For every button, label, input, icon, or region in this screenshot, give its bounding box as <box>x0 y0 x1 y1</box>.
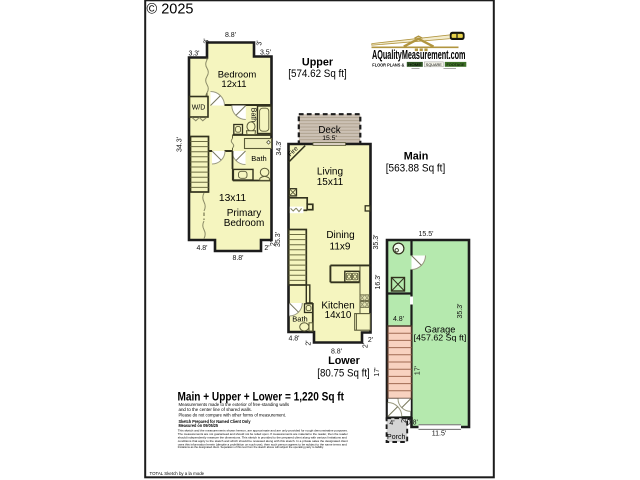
svg-text:FOOTAGE: FOOTAGE <box>447 63 466 67</box>
svg-text:© 2025: © 2025 <box>147 2 194 18</box>
svg-text:0.8': 0.8' <box>407 420 418 427</box>
svg-text:HOME: HOME <box>408 63 422 67</box>
svg-text:Bath: Bath <box>251 154 266 163</box>
svg-text:4.8': 4.8' <box>196 245 207 252</box>
svg-text:Living: Living <box>317 167 343 178</box>
svg-text:Bath: Bath <box>250 108 257 123</box>
svg-text:TOTAL Sketch by a la mode: TOTAL Sketch by a la mode <box>150 471 205 476</box>
svg-text:8.8': 8.8' <box>225 32 236 39</box>
svg-text:2': 2' <box>305 340 312 345</box>
svg-text:4': 4' <box>389 420 394 427</box>
svg-text:34.3': 34.3' <box>276 141 283 156</box>
svg-text:2': 2' <box>363 343 370 348</box>
svg-text:W/D: W/D <box>192 105 206 112</box>
svg-text:15.5': 15.5' <box>322 135 337 142</box>
svg-text:4.8': 4.8' <box>288 336 299 343</box>
svg-text:[563.88 Sq ft]: [563.88 Sq ft] <box>386 163 446 175</box>
svg-text:34.3': 34.3' <box>177 137 184 152</box>
svg-text:8.8': 8.8' <box>232 255 243 262</box>
svg-text:Upper: Upper <box>302 57 334 69</box>
svg-text:and to the center line of shar: and to the center line of shared walls. <box>179 407 253 413</box>
svg-text:14x10: 14x10 <box>325 310 352 321</box>
svg-text:limitations as the designated: limitations as the designated client. Se… <box>178 445 324 449</box>
svg-text:Please do not compare with oth: Please do not compare with other forms o… <box>179 412 287 418</box>
svg-text:15x11: 15x11 <box>317 177 344 188</box>
svg-text:3.3': 3.3' <box>188 51 199 58</box>
svg-text:35.3': 35.3' <box>457 304 464 319</box>
svg-text:[80.75 Sq ft]: [80.75 Sq ft] <box>317 368 370 380</box>
svg-text:3': 3' <box>257 40 264 45</box>
svg-text:11.5': 11.5' <box>432 431 446 438</box>
svg-text:AQualityMeasurement.com: AQualityMeasurement.com <box>372 48 466 62</box>
svg-text:12x11: 12x11 <box>221 79 246 90</box>
svg-text:15.5': 15.5' <box>419 231 434 238</box>
svg-text:[457.62 Sq ft]: [457.62 Sq ft] <box>414 333 467 342</box>
svg-text:FLOOR PLANS &: FLOOR PLANS & <box>372 62 404 68</box>
svg-text:SQUARE: SQUARE <box>426 63 443 67</box>
svg-text:11x9: 11x9 <box>330 242 351 253</box>
svg-text:Bath: Bath <box>292 315 307 324</box>
svg-text:16.3': 16.3' <box>375 275 382 290</box>
svg-text:17': 17' <box>374 367 381 376</box>
svg-text:3.5': 3.5' <box>260 50 271 57</box>
svg-text:Bedroom: Bedroom <box>224 218 265 229</box>
svg-text:[574.62 Sq ft]: [574.62 Sq ft] <box>288 68 347 80</box>
svg-text:3': 3' <box>204 38 211 43</box>
svg-text:Main + Upper + Lower = 1,220 S: Main + Upper + Lower = 1,220 Sq ft <box>178 390 345 404</box>
svg-text:Lower: Lower <box>328 355 361 367</box>
svg-text:Main: Main <box>404 151 429 163</box>
svg-text:35.3': 35.3' <box>373 235 380 250</box>
svg-text:35.3': 35.3' <box>275 232 282 247</box>
svg-text:13x11: 13x11 <box>219 193 247 204</box>
svg-text:Dining: Dining <box>326 230 354 241</box>
svg-text:17': 17' <box>415 366 422 375</box>
svg-text:Porch: Porch <box>387 434 405 441</box>
svg-text:4.8': 4.8' <box>393 316 404 323</box>
